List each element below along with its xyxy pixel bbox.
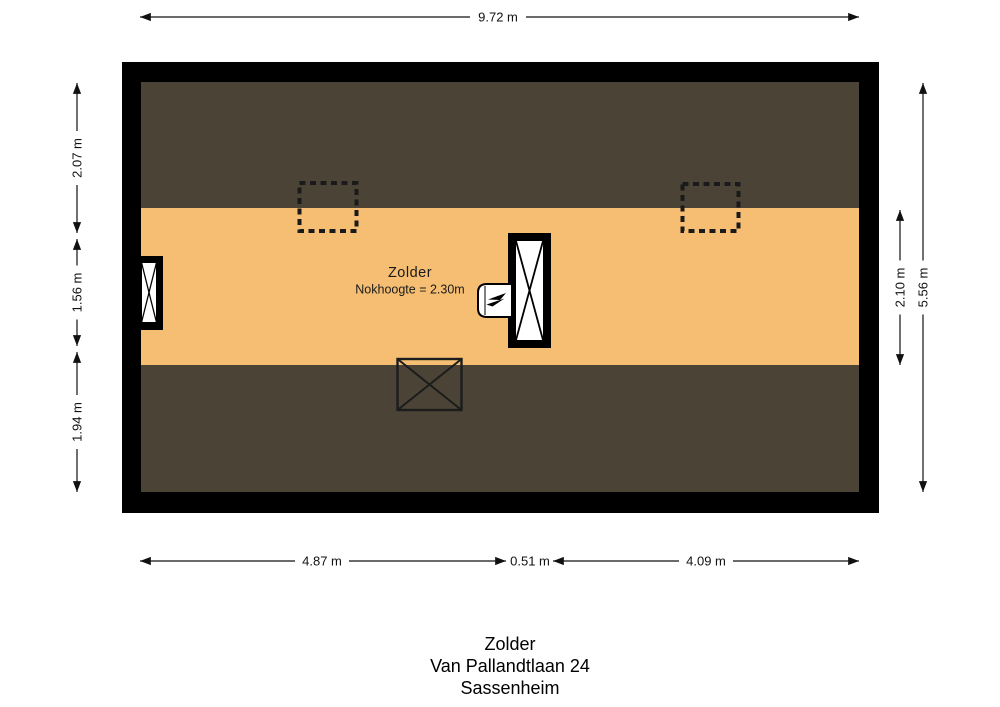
caption-address: Van Pallandtlaan 24: [430, 656, 590, 676]
boiler-symbol: [478, 284, 512, 317]
dimension-left-label-1: 2.07 m: [70, 138, 85, 178]
caption: Zolder Van Pallandtlaan 24 Sassenheim: [430, 634, 590, 698]
boiler-body: [478, 284, 512, 317]
room-name-label: Zolder: [388, 265, 432, 281]
dimension-bottom-label-3: 4.09 m: [686, 554, 726, 569]
window-symbol: [136, 256, 163, 330]
stairs-opening-symbol: [508, 233, 551, 348]
caption-city: Sassenheim: [460, 678, 559, 698]
dimension-left-label-2: 1.56 m: [70, 273, 85, 313]
dimension-left-label-3: 1.94 m: [70, 402, 85, 442]
dimension-bottom-label-1: 4.87 m: [302, 554, 342, 569]
dimension-bottom-label-2: 0.51 m: [510, 554, 550, 569]
floorplan-canvas: Zolder Nokhoogte = 2.30m 9.72 m 2.07 m 1…: [0, 0, 1000, 707]
floorplan-page: Zolder Nokhoogte = 2.30m 9.72 m 2.07 m 1…: [0, 0, 1000, 707]
dimension-top-label: 9.72 m: [478, 10, 518, 25]
ridge-height-label: Nokhoogte = 2.30m: [355, 283, 464, 297]
caption-room: Zolder: [484, 634, 535, 654]
dimension-right-inner-label: 2.10 m: [893, 268, 908, 308]
dimension-right-outer-label: 5.56 m: [916, 268, 931, 308]
floor-plan: Zolder Nokhoogte = 2.30m: [122, 62, 879, 513]
